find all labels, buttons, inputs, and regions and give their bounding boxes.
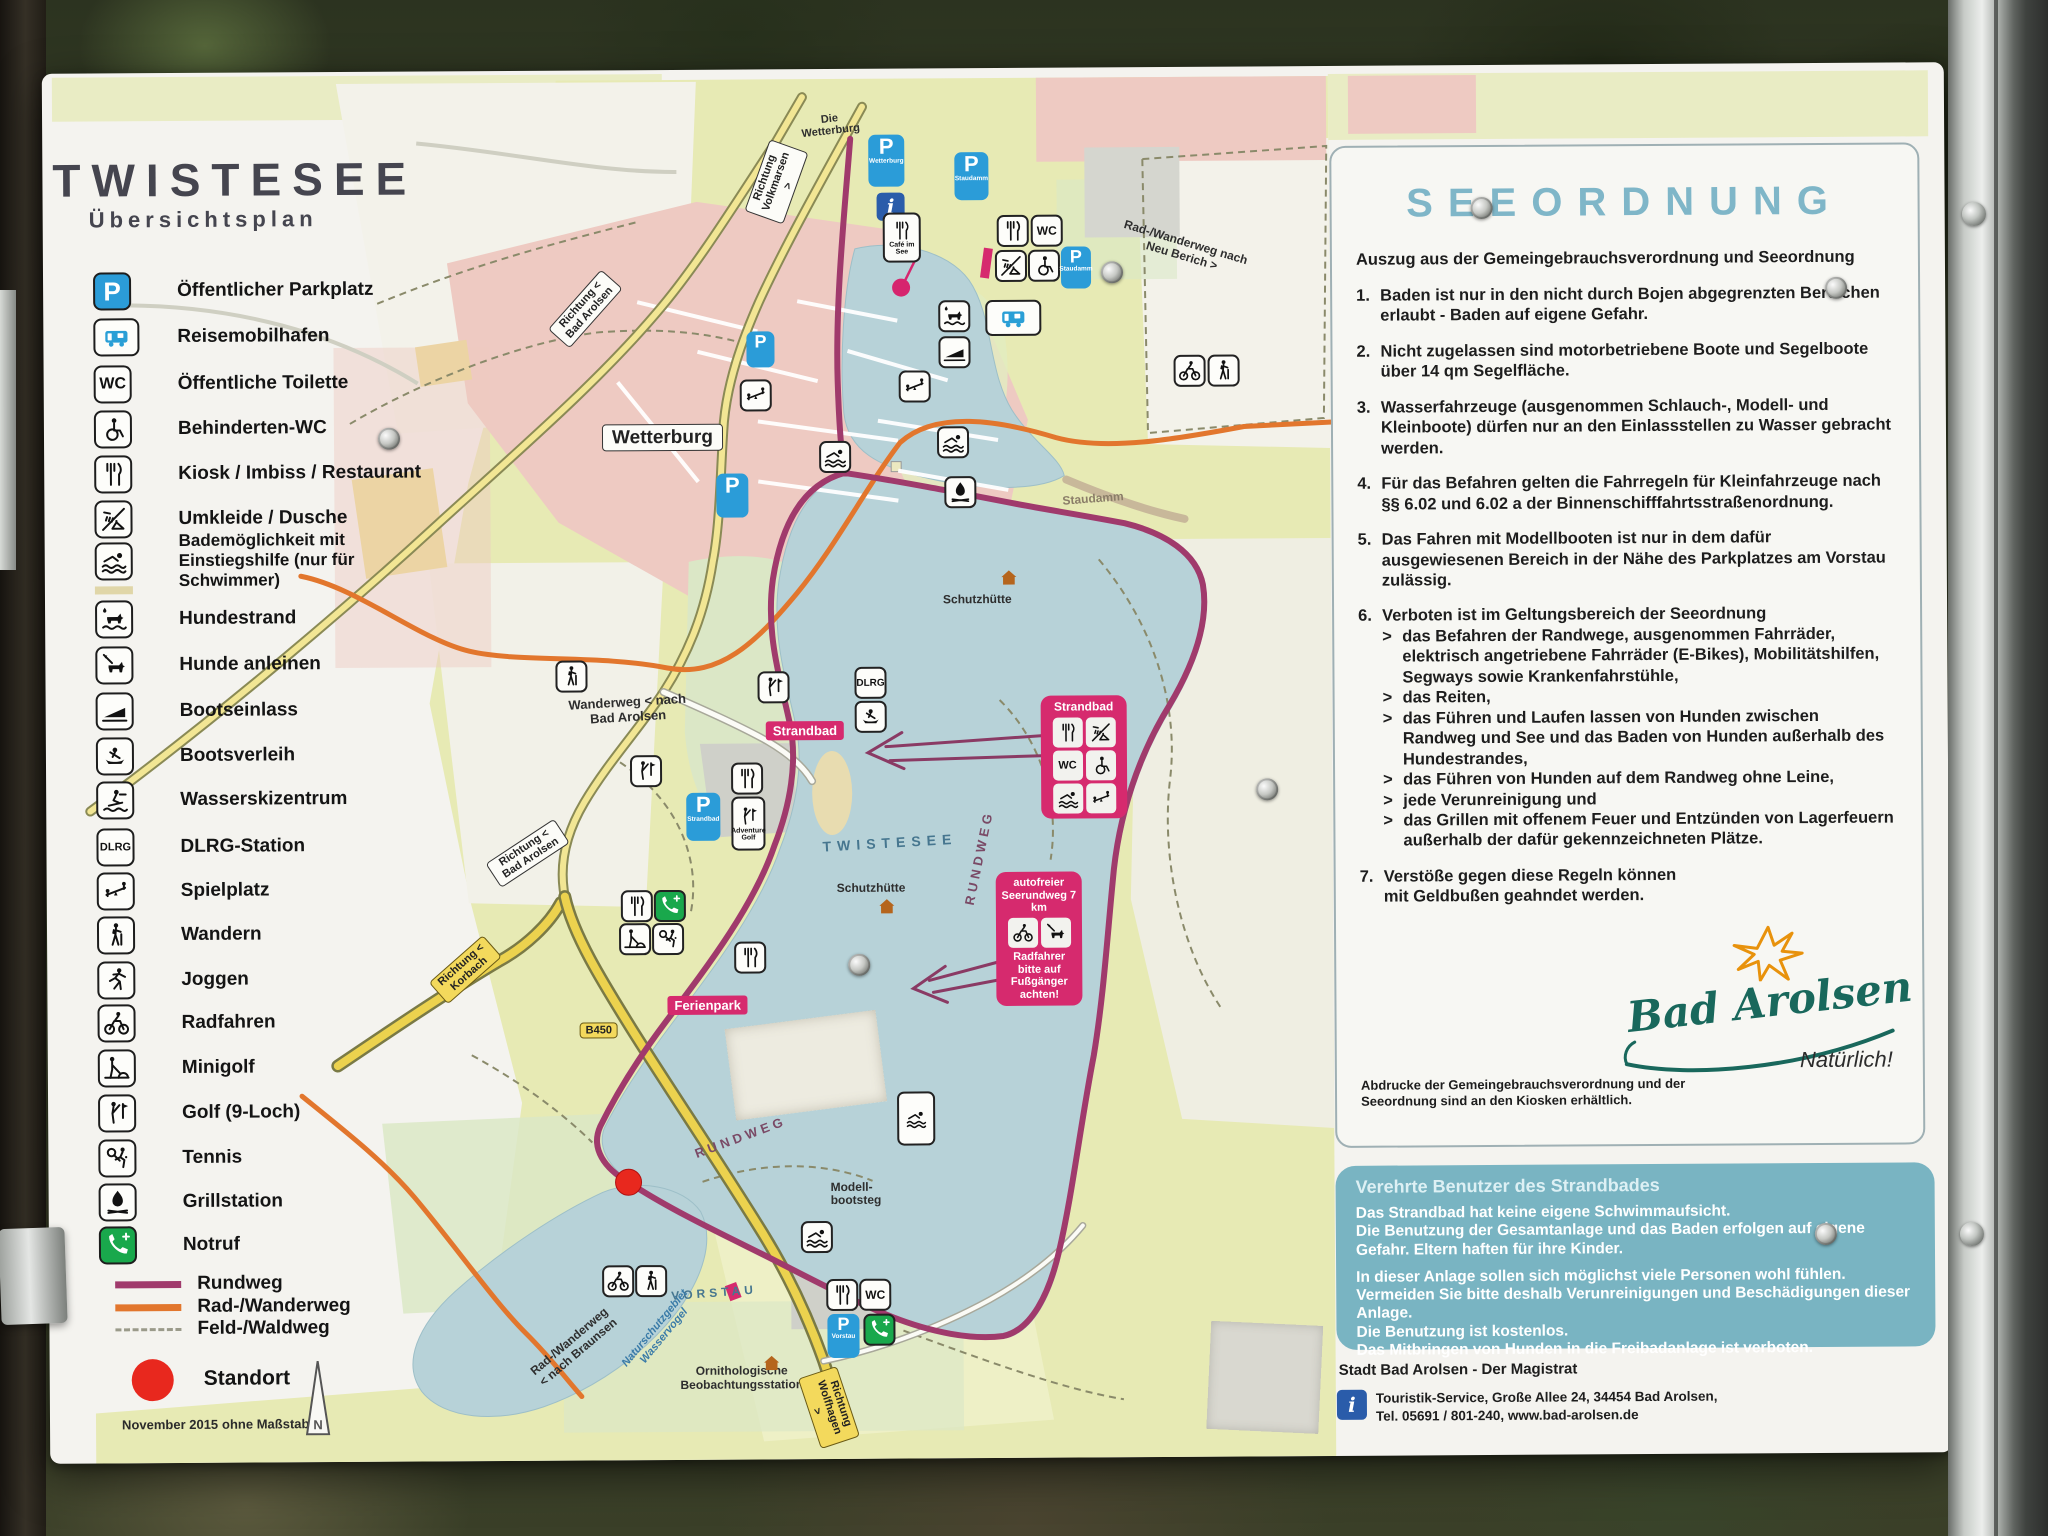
cycling-icon [1174,355,1206,387]
swimmer-icon [1053,783,1083,813]
parking-icon: PStrandbad [686,793,720,841]
parking-icon: PWetterburg [868,135,904,187]
tennis-icon [652,923,684,955]
dog-beach-icon [95,600,133,638]
north-arrow-icon: N [302,1358,334,1438]
golf-icon [630,755,662,787]
shower-icon [995,250,1027,282]
legend-item: Joggen [97,960,249,1001]
map-label-wetterburg: Wetterburg [602,424,723,452]
legend-item: WCÖffentliche Toilette [94,363,349,405]
info-board: TWISTESEE Übersichtsplan PÖffentlicher P… [42,62,1952,1464]
hut-icon [762,1353,782,1373]
map-label-schutzhuette: Schutzhütte [837,881,906,895]
parking-icon: P [93,272,131,310]
wc-icon: WC [94,365,132,403]
rule: 6.Verboten ist im Geltungsbereich der Se… [1358,603,1897,852]
hiking-icon [1208,355,1240,387]
cycling-icon [97,1004,135,1042]
playground-icon [97,872,135,910]
adventure-golf-icon: Adventure Golf [731,796,765,850]
cafe-icon: Café im See [883,212,921,262]
info-icon: i [1337,1390,1367,1420]
legend-item: Wasserskizentrum [96,779,347,821]
strandbad-notice: Verehrte Benutzer des Strandbades Das St… [1335,1162,1935,1350]
legend-item: Hunde anleinen [95,644,321,685]
map-label-b450: B450 [580,1022,618,1039]
screw [1815,1223,1837,1245]
tape-patch [1206,1321,1323,1434]
restaurant-icon [621,890,653,922]
map-label-ornithologische: Ornithologische Beobachtungsstation [680,1363,804,1392]
brand-tagline: Natürlich! [1800,1047,1893,1074]
emergency-phone-icon [863,1314,895,1346]
standort-label: Standort [204,1366,290,1391]
map-label-ferienpark: Ferienpark [667,996,748,1015]
cycling-icon [1007,918,1037,948]
wheelchair-icon [1028,250,1060,282]
restaurant-icon [826,1279,858,1311]
map-label-strandbad: Strandbad [766,721,844,740]
playground-icon [740,379,772,411]
screw [1471,197,1493,219]
legend-route-radwanderweg: Rad-/Wanderweg [115,1295,351,1318]
legend-item: Hundestrand [95,598,296,639]
map-label-modellbootsteg: Modell- bootsteg [831,1181,895,1208]
legend-item: Spielplatz [97,870,270,911]
minigolf-icon [619,923,651,955]
dog-leash-icon [1040,917,1070,947]
legend-item: Bootsverleih [96,735,295,776]
restaurant-icon [997,215,1029,247]
boat-ramp-icon [96,692,134,730]
grill-icon [99,1183,137,1221]
rule-sub-item: >das Führen von Hunden auf dem Randweg o… [1383,767,1897,791]
legend-item: Kiosk / Imbiss / Restaurant [94,453,421,495]
page-title: TWISTESEE [52,152,417,208]
jogging-icon [97,961,135,999]
swimmer-icon [801,1221,833,1253]
legend-item: Bootseinlass [96,690,299,731]
legend-item: DLRGDLRG-Station [96,826,305,867]
legend-item: PÖffentlicher Parkplatz [93,270,374,312]
bad-arolsen-star-icon [1730,925,1804,981]
parking-icon: PStaudamm [1061,246,1091,288]
sand-strip [95,586,133,594]
legend-item: Golf (9-Loch) [98,1092,300,1133]
map-date: November 2015 [122,1417,218,1433]
screw [1825,277,1847,299]
rule: 5.Das Fahren mit Modellbooten ist nur in… [1358,527,1896,592]
swimmer-icon [819,441,851,473]
swimmer-icon [95,542,133,580]
minigolf-icon [98,1049,136,1087]
screw [378,428,400,450]
mounting-bracket [0,1227,68,1325]
seerundweg-box: autofreier Seerundweg 7 km Radfahrer bit… [996,871,1083,1006]
legend-item: Tennis [98,1138,242,1179]
legend-item: Bademöglichkeit mit Einstiegshilfe (nur … [95,540,415,582]
scale-note: ohne Maßstab [222,1416,309,1432]
waterski-icon [96,781,134,819]
legend-item: Minigolf [98,1048,255,1089]
hiking-icon [635,1265,667,1297]
restaurant-icon [94,455,132,493]
playground-icon [1086,783,1116,813]
notice-heading: Verehrte Benutzer des Strandbades [1356,1173,1915,1197]
boat-rental-icon [96,737,134,775]
rule-sub-item: >das Befahren der Randwege, ausgenommen … [1382,623,1896,687]
map-label-schutzhuette: Schutzhütte [943,592,1012,606]
legend-item: Reisemobilhafen [93,316,329,357]
wc-icon: WC [1052,750,1082,780]
playground-icon [899,370,931,402]
hiking-icon [97,916,135,954]
parking-icon: P [716,474,748,518]
photo-scene: TWISTESEE Übersichtsplan PÖffentlicher P… [0,0,2048,1536]
left-pole-strip [0,290,16,570]
hut-icon [877,897,897,917]
dlrg-icon: DLRG [96,828,134,866]
legend-route-feldwaldweg: Feld-/Waldweg [115,1317,329,1340]
footer-contact: Touristik-Service, Große Allee 24, 34454… [1376,1388,1718,1425]
rule: 3.Wasserfahrzeuge (ausgenommen Schlauch-… [1357,394,1895,459]
screw [1256,778,1278,800]
shower-icon [94,500,132,538]
page-subtitle: Übersichtsplan [89,206,318,233]
wc-icon: WC [1031,215,1063,247]
notice-paragraph: Das Mitbringen von Hunden in die Freibad… [1357,1338,1916,1360]
emergency-phone-icon [99,1226,137,1264]
legend-item: Grillstation [99,1181,284,1222]
standort-dot [132,1359,174,1401]
parking-icon: PVorstau [827,1314,859,1358]
seeordnung-title: SEEORDNUNG [1355,179,1893,227]
screw [1101,261,1123,283]
restaurant-icon [734,941,766,973]
tennis-icon [98,1139,136,1177]
restaurant-icon [731,762,763,794]
rule: 1.Baden ist nur in den nicht durch Bojen… [1356,283,1894,327]
restaurant-icon [1052,717,1082,747]
swimmer-icon [937,426,969,458]
rule: 4.Für das Befahren gelten die Fahrregeln… [1357,471,1895,515]
rv-icon [93,318,139,356]
parking-icon: P [746,331,774,367]
rule: 7.Verstöße gegen diese Regeln können mit… [1360,863,1898,907]
legend-item: Behinderten-WC [94,408,327,449]
golf-icon [757,671,789,703]
legend-item: Radfahren [97,1002,275,1043]
emergency-phone-icon [654,890,686,922]
cycling-icon [602,1265,634,1297]
seeordnung-intro: Auszug aus der Gemeingebrauchsverordnung… [1356,248,1894,270]
hiking-icon [555,661,587,693]
tape-patch [725,1010,888,1121]
dog-beach-icon [938,300,970,332]
boat-rental-icon [855,701,887,733]
rule-sub-item: >das Führen und Laufen lassen von Hunden… [1383,705,1897,769]
wc-icon: WC [859,1279,891,1311]
fkk-swim-icon [897,1091,935,1145]
boat-ramp-icon [938,336,970,368]
svg-text:N: N [313,1417,322,1432]
dlrg-icon: DLRG [854,667,886,699]
hut-icon [999,568,1019,588]
wheelchair-icon [94,410,132,448]
rv-icon [985,300,1041,336]
right-pole [1948,0,2048,1536]
golf-icon [98,1094,136,1132]
parking-icon: PStaudamm [954,152,988,200]
notice-paragraph: In dieser Anlage sollen sich möglichst v… [1356,1265,1915,1323]
strandbad-facilities-box: Strandbad WC [1041,695,1128,818]
grill-icon [944,476,976,508]
dog-leash-icon [95,646,133,684]
footer-publisher: Stadt Bad Arolsen - Der Magistrat [1339,1360,1578,1378]
rule: 2.Nicht zugelassen sind motorbetriebene … [1356,338,1894,382]
bad-arolsen-logo: Bad Arolsen Natürlich! [1620,928,1901,1100]
screw [848,954,870,976]
rule-sub-item: >das Grillen mit offenem Feuer und Entzü… [1383,807,1897,851]
shower-icon [1085,717,1115,747]
wheelchair-icon [1085,750,1115,780]
legend-route-rundweg: Rundweg [115,1272,283,1295]
legend-item: Wandern [97,914,262,955]
legend-item: Notruf [99,1225,240,1266]
